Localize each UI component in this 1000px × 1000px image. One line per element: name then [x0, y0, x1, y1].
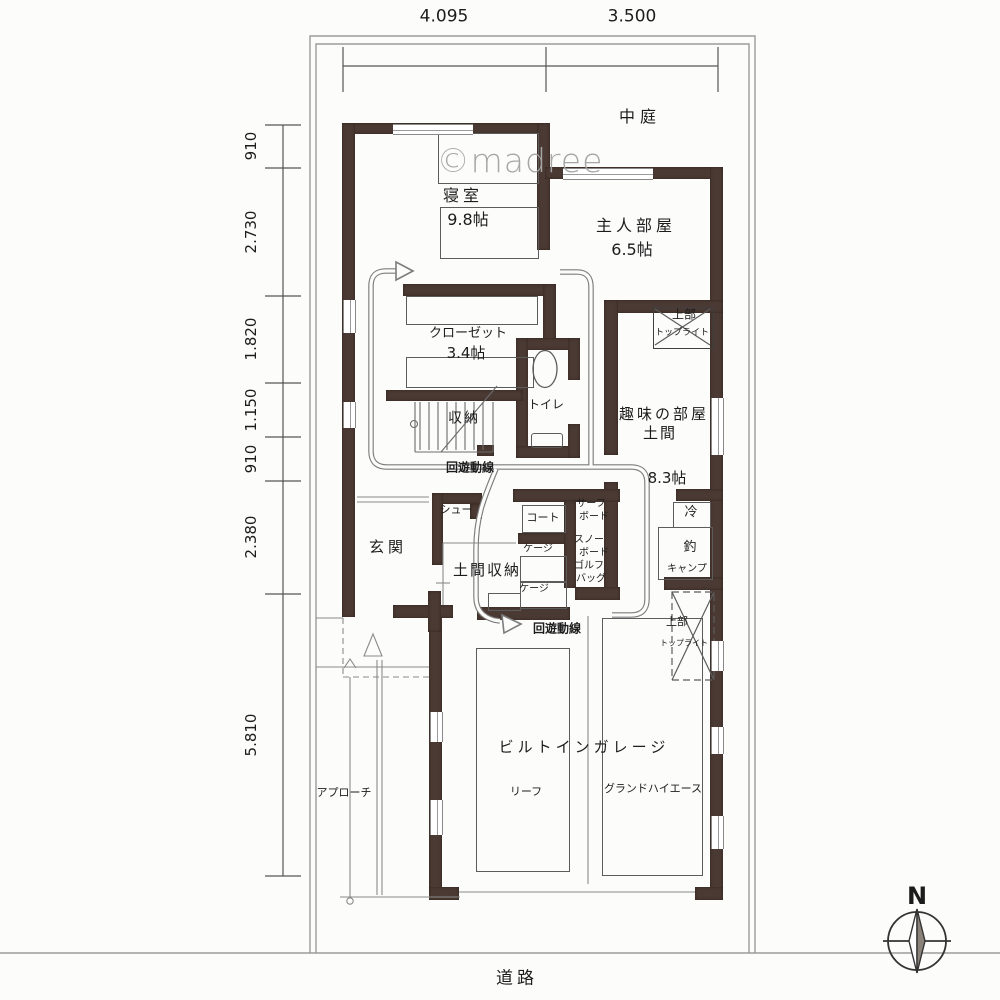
watermark: ©madree: [437, 143, 604, 179]
approach-lines: [316, 618, 460, 904]
item-surfboard-label-1: サーフ: [576, 499, 605, 510]
dim-top-1: 4.095: [420, 8, 469, 27]
window: [711, 816, 724, 849]
item-cage-label-1: ケージ: [523, 544, 553, 555]
road-label: 道路: [496, 970, 538, 989]
dimension-top: [343, 47, 718, 92]
skylight-garage-label-2: トップライト: [660, 640, 708, 649]
room-master-size: 6.5帖: [611, 241, 652, 259]
item-camp-label: キャンプ: [667, 564, 707, 575]
car-hiace-label: グランドハイエース: [604, 783, 702, 795]
circulation-label-lower: 回遊動線: [533, 622, 581, 635]
window: [343, 402, 356, 428]
window: [393, 124, 473, 135]
dimension-left: [265, 125, 301, 876]
car-leaf-label: リーフ: [510, 786, 542, 798]
room-storage-name: 収納: [448, 411, 480, 426]
room-hobby-name: 趣味の部屋: [619, 406, 709, 423]
circulation-arrow-lower: [502, 615, 521, 633]
dim-left-5: 910: [242, 445, 260, 474]
item-snowboard-label-2: ボード: [579, 548, 609, 559]
room-master-name: 主人部屋: [596, 217, 676, 235]
skylight-garage: [672, 592, 714, 680]
skylight-hobby-label-2: トップライト: [655, 329, 709, 339]
skylight-hobby-label-1: 上部: [672, 308, 696, 321]
dim-top-2: 3.500: [608, 8, 657, 27]
room-genkan-name: 玄関: [369, 539, 407, 556]
room-toilet-name: トイレ: [528, 398, 564, 411]
dim-left-7: 5.810: [242, 714, 260, 757]
window: [430, 712, 443, 742]
compass-north-label: N: [907, 883, 927, 909]
dim-left-4: 1.150: [242, 389, 260, 432]
item-fridge-label: 冷: [684, 506, 697, 520]
item-fishing-label: 釣: [683, 541, 696, 555]
room-hobby-floor: 土間: [643, 425, 677, 442]
item-golfbag-label-1: ゴルフ: [574, 561, 604, 572]
room-doma-storage-name: 土間収納: [453, 562, 521, 579]
dim-left-1: 910: [242, 132, 260, 161]
room-closet-name: クローゼット: [429, 327, 507, 341]
room-hobby-size: 8.3帖: [648, 470, 687, 487]
window: [430, 800, 443, 835]
window: [711, 398, 724, 455]
window: [343, 300, 356, 333]
toilet-fixture: [533, 351, 557, 388]
dim-left-3: 1.820: [242, 318, 260, 361]
dim-left-2: 2.730: [242, 211, 260, 254]
item-golfbag-label-2: バッグ: [576, 574, 606, 585]
courtyard-label: 中庭: [619, 108, 661, 126]
room-closet-size: 3.4帖: [447, 345, 486, 362]
dim-left-6: 2.380: [242, 516, 260, 559]
compass-icon: [883, 909, 951, 973]
room-bedroom-size: 9.8帖: [447, 211, 488, 229]
window: [711, 641, 724, 671]
room-garage-name: ビルトインガレージ: [499, 739, 670, 756]
floor-plan: ©madree 4.095 3.500 910 2.730 1.820 1.15…: [0, 0, 1000, 1000]
item-surfboard-label-2: ボード: [579, 512, 609, 523]
approach-label: アプローチ: [317, 787, 372, 799]
item-shoe-label: シュー: [440, 504, 473, 516]
item-snowboard-label-1: スノー: [574, 535, 604, 546]
circulation-arrow-upper: [396, 262, 413, 280]
room-bedroom-name: 寝室: [443, 187, 483, 205]
item-cage-label-2: ケージ: [519, 584, 549, 595]
skylight-garage-label-1: 上部: [666, 616, 688, 628]
circulation-label-upper: 回遊動線: [446, 461, 494, 474]
window: [711, 727, 724, 754]
item-coat-label: コート: [527, 512, 560, 524]
